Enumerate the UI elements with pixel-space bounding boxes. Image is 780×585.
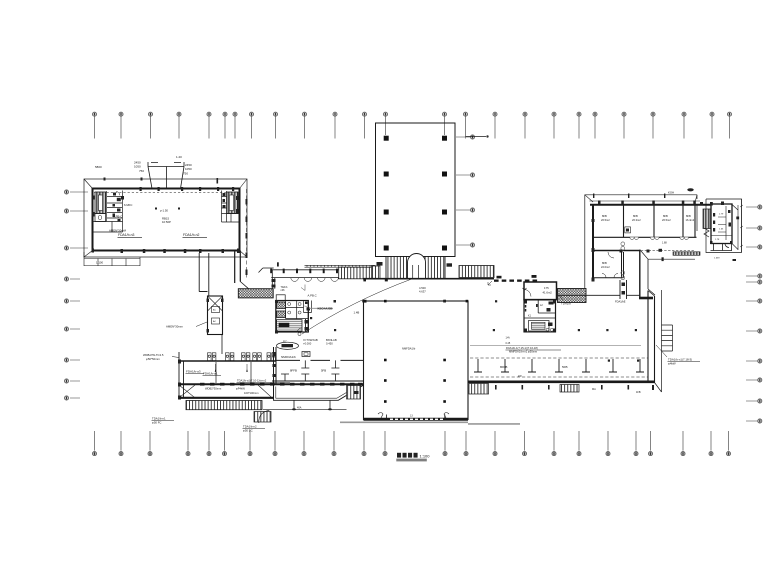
- svg-text:MA: MA: [592, 388, 596, 391]
- svg-text:FDA1/b-n2: FDA1/b-n2: [183, 233, 200, 237]
- svg-text:1.100: 1.100: [96, 261, 103, 265]
- svg-text:8FB: 8FB: [663, 214, 668, 218]
- svg-text:p-1.50: p-1.50: [160, 209, 168, 213]
- svg-text:40A: 40A: [297, 406, 302, 409]
- svg-text:φ50*50mm: φ50*50mm: [146, 357, 160, 361]
- svg-text:1050: 1050: [185, 167, 192, 171]
- svg-text:8FFB: 8FFB: [500, 365, 507, 369]
- svg-text:10:50P: 10:50P: [162, 220, 171, 224]
- svg-text:BXNLAB: BXNLAB: [326, 338, 337, 342]
- svg-text:8FB: 8FB: [633, 214, 638, 218]
- svg-text:8FFB: 8FFB: [290, 369, 297, 373]
- svg-text:1FB: 1FB: [636, 391, 641, 394]
- svg-text:1050: 1050: [134, 165, 141, 169]
- svg-text:750: 750: [139, 169, 144, 173]
- svg-text:KOH: KOH: [668, 191, 674, 195]
- svg-text:FDA1/b-1(7.15-1)(7.16-18): FDA1/b-1(7.15-1)(7.16-18): [506, 346, 538, 350]
- svg-text:1/4t: 1/4t: [506, 337, 510, 340]
- svg-text:26.5m2: 26.5m2: [601, 218, 610, 222]
- svg-text:0.450: 0.450: [326, 341, 333, 345]
- svg-text:FDA1/b-a3: FDA1/b-a3: [186, 370, 201, 374]
- svg-text:φ4kW: φ4kW: [668, 361, 676, 365]
- svg-text:FDA1/b-a1: FDA1/b-a1: [203, 372, 218, 376]
- svg-text:8FB: 8FB: [602, 261, 607, 265]
- svg-text:100*100mm: 100*100mm: [244, 391, 259, 395]
- svg-text:A.PB-C: A.PB-C: [113, 215, 122, 219]
- svg-text:8FB: 8FB: [686, 214, 691, 218]
- svg-text:n06: n06: [281, 289, 286, 292]
- svg-text:NMFDA1/b: NMFDA1/b: [402, 347, 416, 351]
- svg-text:KBOA/USB: KBOA/USB: [318, 306, 333, 310]
- svg-text:8FB: 8FB: [602, 214, 607, 218]
- svg-text:TDA1/b-a1(7.10-1)/a-m2: TDA1/b-a1(7.10-1)/a-m2: [237, 379, 267, 383]
- svg-text:kW: kW: [518, 375, 522, 378]
- svg-text:5FB: 5FB: [562, 365, 568, 369]
- svg-text:NMFDA1/b: NMFDA1/b: [281, 355, 296, 359]
- svg-text:4.500: 4.500: [419, 286, 426, 290]
- svg-text:1.639: 1.639: [714, 258, 720, 260]
- svg-text:1.4B: 1.4B: [354, 310, 360, 314]
- svg-text:5FB: 5FB: [321, 369, 326, 373]
- svg-text:4.637: 4.637: [419, 290, 426, 294]
- svg-text:41.6m2: 41.6m2: [543, 291, 553, 295]
- svg-text:6.MFC: 6.MFC: [124, 203, 132, 207]
- svg-text:RC: RC: [283, 340, 287, 344]
- svg-text:16.4m2: 16.4m2: [686, 218, 695, 222]
- svg-text:φ50 BC: φ50 BC: [243, 428, 253, 432]
- svg-text:AMEN*30mM: AMEN*30mM: [109, 229, 127, 233]
- svg-text:175: 175: [544, 286, 549, 290]
- svg-text:22.0m2: 22.0m2: [601, 265, 610, 269]
- svg-text:AMEN*30mm: AMEN*30mm: [166, 325, 184, 329]
- svg-text:AC: AC: [213, 320, 216, 323]
- svg-text:A.PB.C: A.PB.C: [308, 293, 317, 297]
- svg-text:FDA1/bE: FDA1/bE: [615, 300, 626, 304]
- svg-text:1.88: 1.88: [662, 242, 667, 245]
- svg-text:AC: AC: [213, 309, 216, 312]
- svg-text:+0.000: +0.000: [303, 341, 312, 345]
- svg-text:φP4kW: φP4kW: [236, 387, 245, 391]
- svg-text:X=TXWXAB: X=TXWXAB: [303, 338, 318, 342]
- svg-text:26.3m2: 26.3m2: [632, 218, 641, 222]
- svg-text:750: 750: [183, 172, 188, 176]
- svg-text:5800: 5800: [95, 165, 102, 169]
- svg-text:0.45: 0.45: [506, 342, 511, 345]
- svg-text:1.20: 1.20: [176, 155, 182, 159]
- svg-text:TDA1/b: TDA1/b: [561, 302, 571, 306]
- svg-text:FDA1/b-n3: FDA1/b-n3: [118, 233, 135, 237]
- svg-text:1:100: 1:100: [420, 454, 431, 459]
- svg-text:WDB2*30mm: WDB2*30mm: [205, 387, 222, 391]
- svg-text:26.5m2: 26.5m2: [662, 218, 671, 222]
- svg-text:φ50 FC: φ50 FC: [152, 421, 161, 425]
